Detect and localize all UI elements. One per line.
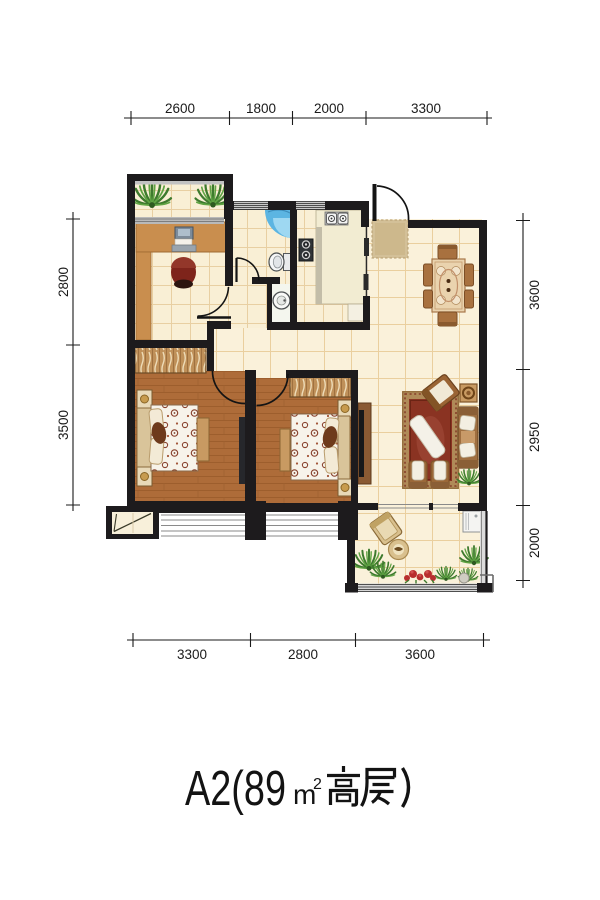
svg-text:2800: 2800 — [56, 267, 71, 297]
svg-text:2800: 2800 — [288, 647, 318, 662]
svg-text:2600: 2600 — [165, 101, 195, 116]
svg-text:3500: 3500 — [56, 410, 71, 440]
svg-text:1800: 1800 — [246, 101, 276, 116]
svg-text:2000: 2000 — [314, 101, 344, 116]
svg-text:3600: 3600 — [527, 280, 542, 310]
svg-text:2950: 2950 — [527, 422, 542, 452]
svg-text:2000: 2000 — [527, 528, 542, 558]
svg-text:2: 2 — [313, 776, 322, 793]
svg-text:3300: 3300 — [411, 101, 441, 116]
svg-text:3300: 3300 — [177, 647, 207, 662]
svg-text:A2(89: A2(89 — [185, 762, 286, 816]
svg-text:3600: 3600 — [405, 647, 435, 662]
